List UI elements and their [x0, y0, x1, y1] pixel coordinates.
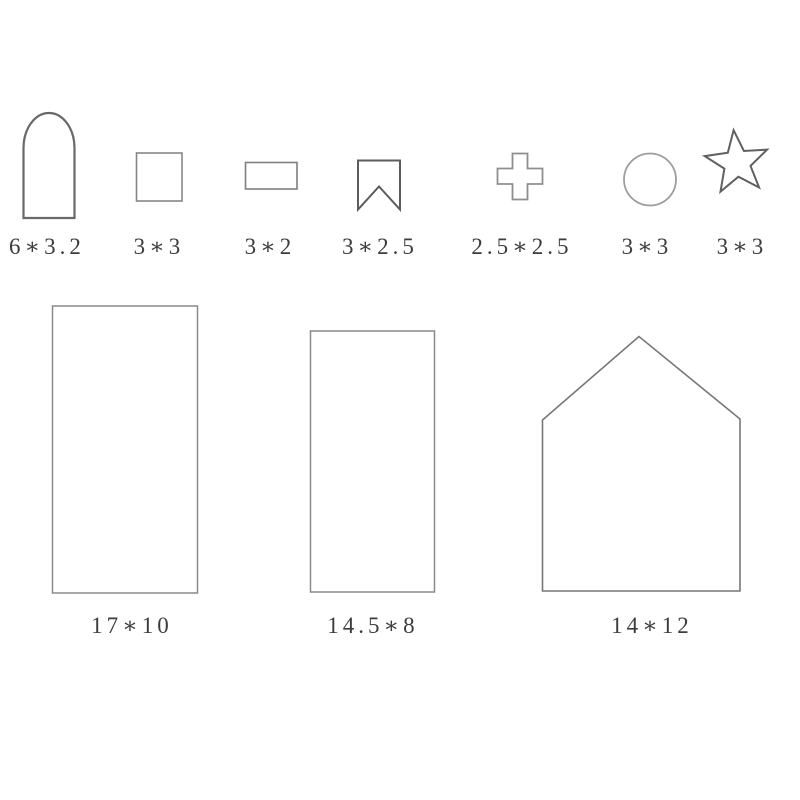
size-label-tall-rectangle-large: 17∗10 — [52, 613, 212, 639]
tall-rectangle-medium-shape — [311, 331, 435, 592]
cross-shape — [498, 154, 543, 200]
size-label-banner: 3∗2.5 — [300, 234, 460, 260]
size-label-star: 3∗3 — [662, 234, 800, 260]
circle-shape — [624, 154, 676, 206]
size-label-tall-rectangle-medium: 14.5∗8 — [293, 613, 453, 639]
tall-rectangle-large-shape — [53, 306, 198, 593]
arch-shape — [24, 113, 75, 218]
size-label-house: 14∗12 — [572, 613, 732, 639]
square-shape — [137, 153, 183, 201]
house-shape — [543, 337, 741, 592]
size-chart-diagram: 6∗3.2 3∗3 3∗2 3∗2.5 2.5∗2.5 3∗3 3∗3 17∗1… — [0, 0, 800, 800]
shape-outlines-layer — [0, 0, 800, 800]
banner-shape — [358, 161, 400, 210]
rectangle-shape — [246, 163, 298, 190]
star-shape — [705, 130, 767, 191]
